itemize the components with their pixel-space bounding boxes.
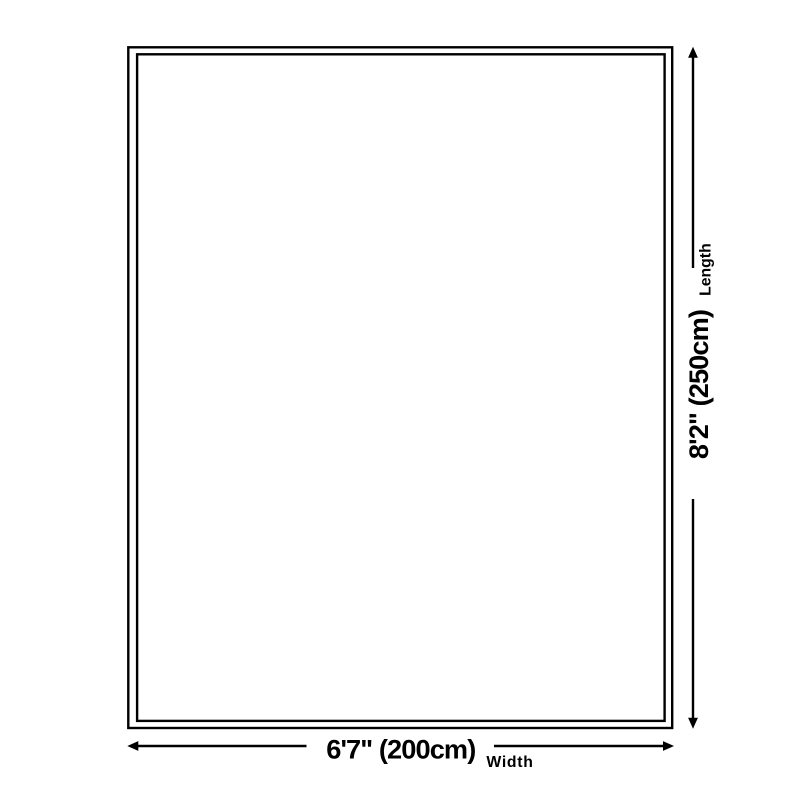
- svg-text:8'2" (250cm): 8'2" (250cm): [683, 310, 714, 459]
- svg-text:6'7" (200cm): 6'7" (200cm): [326, 734, 475, 765]
- svg-text:Width: Width: [486, 754, 533, 771]
- svg-text:Length: Length: [698, 243, 715, 296]
